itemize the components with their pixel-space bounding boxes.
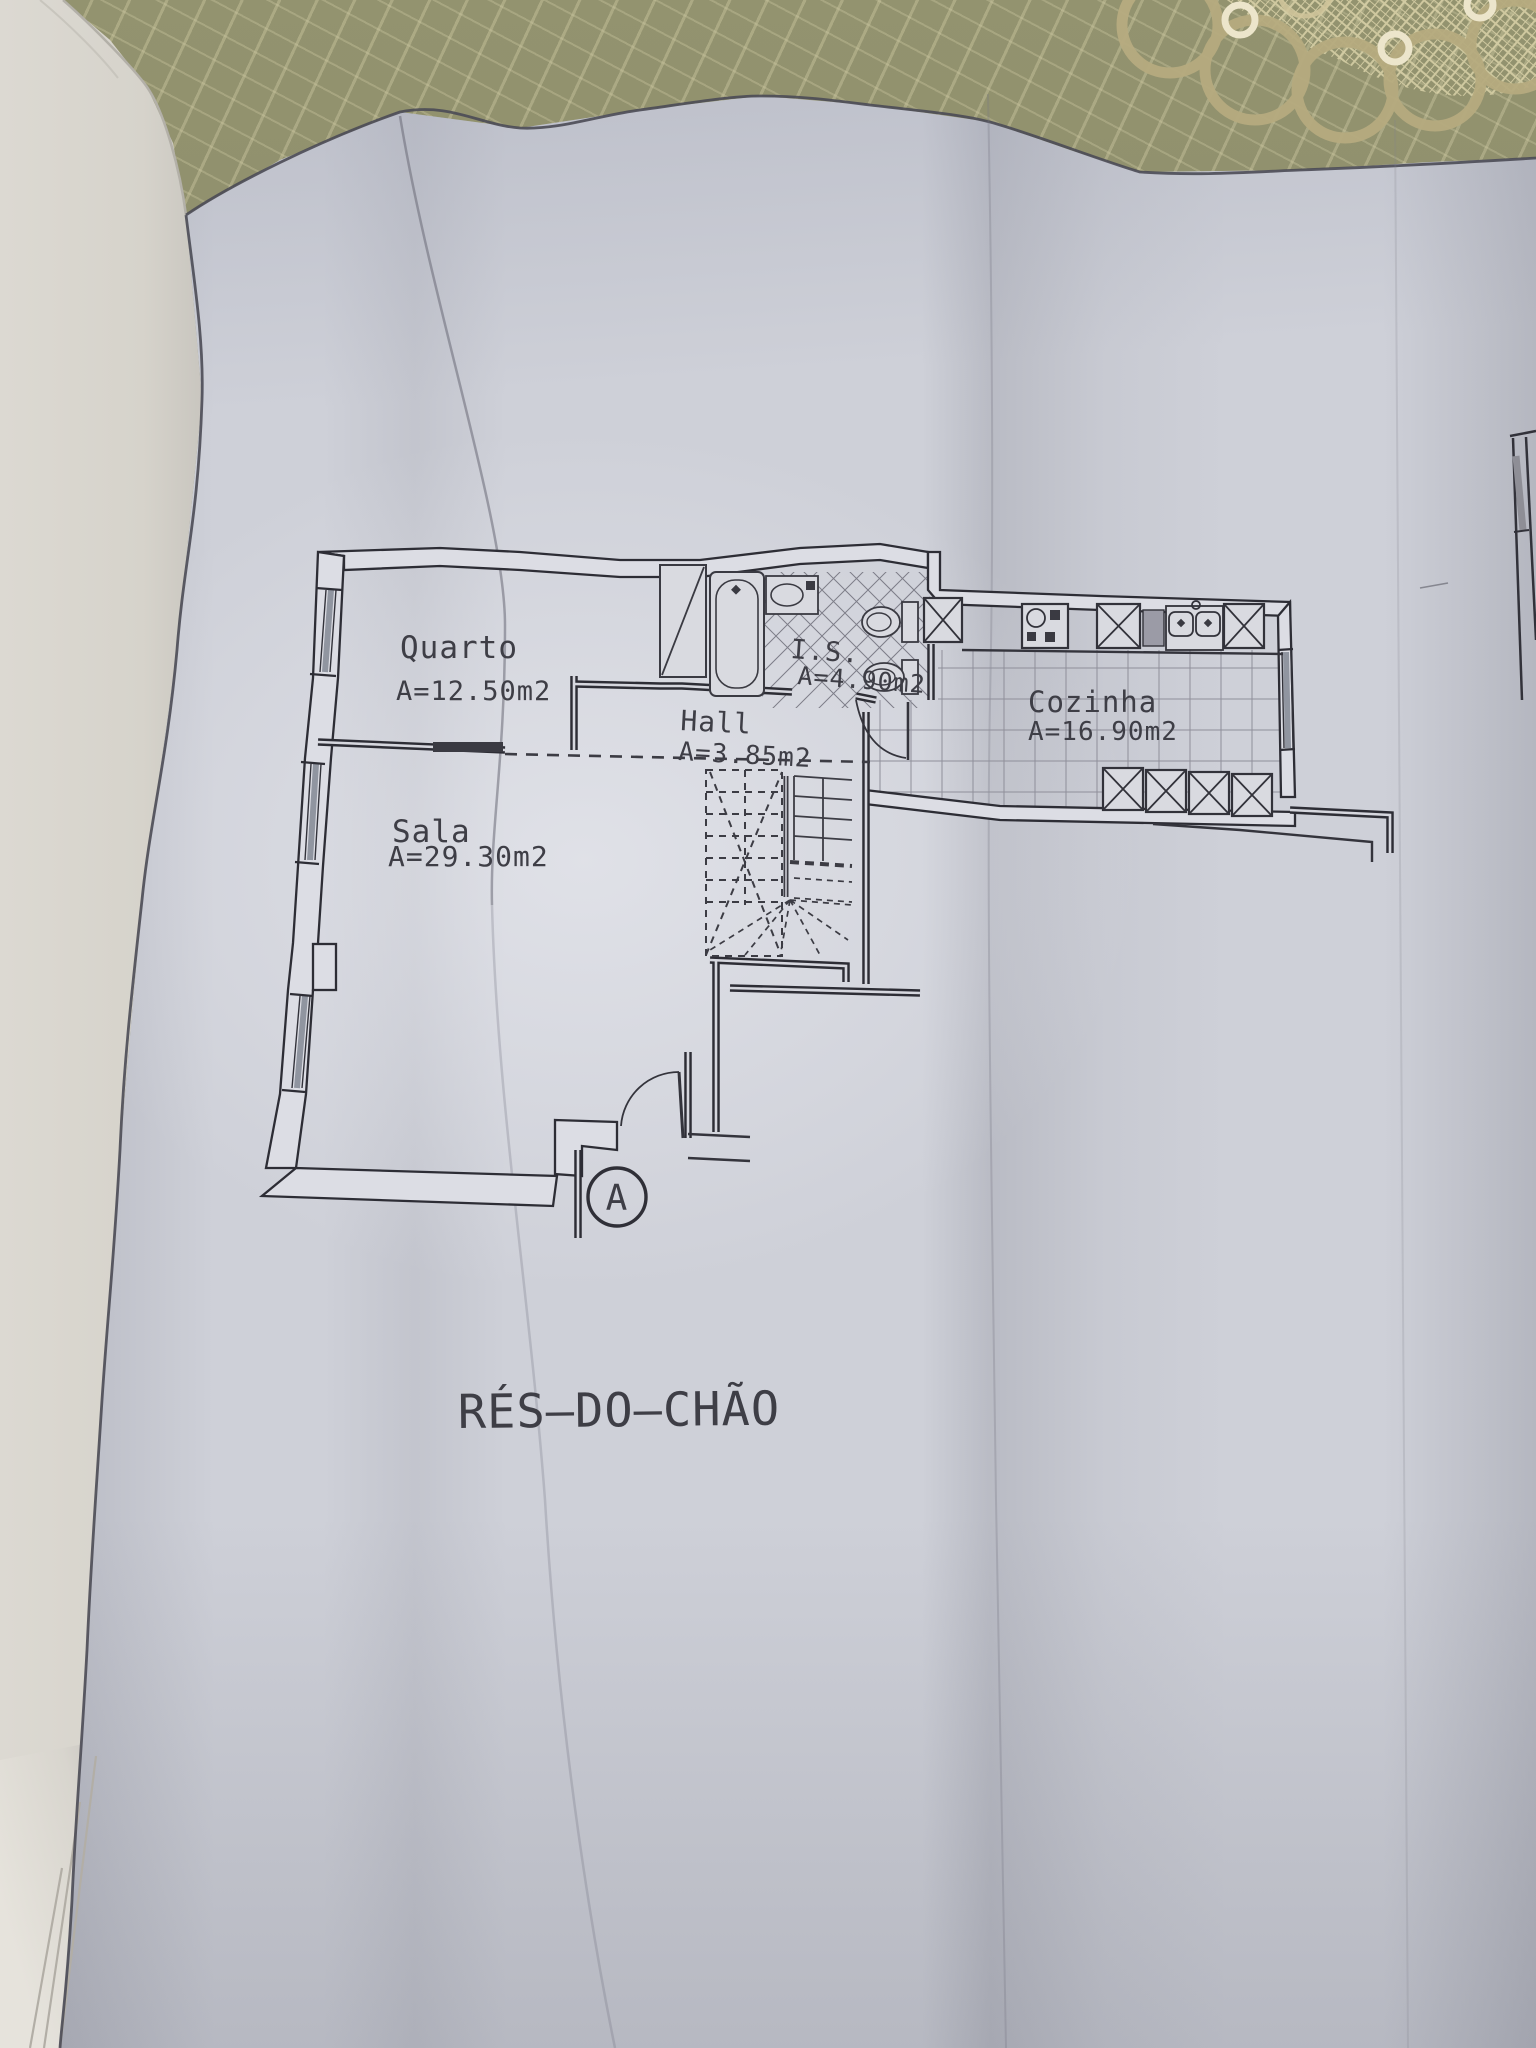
room-area-cozinha: A=16.90m2 <box>1028 717 1178 747</box>
stairs <box>706 770 852 957</box>
entrance-door-arc <box>621 1072 679 1126</box>
interior-walls-core <box>318 644 1390 1238</box>
photo-of-floor-plan: A Quarto A=12.50m2 I.S. A=4.90m2 Hall A=… <box>0 0 1536 2048</box>
threshold-sill <box>433 742 503 752</box>
toilet-symbol <box>862 602 918 642</box>
adjacent-plan-fragment <box>1510 431 1536 700</box>
cabinet-x-symbol <box>924 598 962 642</box>
stairs-section-cut <box>790 862 852 866</box>
room-label-hall: Hall <box>680 704 753 741</box>
kitchen-sink-symbol <box>1166 601 1223 650</box>
drainer-symbol <box>1143 610 1164 646</box>
room-area-sala: A=29.30m2 <box>388 840 549 873</box>
fold-creases <box>400 94 1448 2048</box>
section-marker-letter: A <box>606 1178 629 1219</box>
room-area-quarto: A=12.50m2 <box>396 676 551 707</box>
floor-plan-drawing: A Quarto A=12.50m2 I.S. A=4.90m2 Hall A=… <box>0 0 1536 2048</box>
page-edge-lines <box>30 0 186 2048</box>
room-area-hall: A=3.85m2 <box>678 737 813 774</box>
entrance-door-leaf <box>679 1072 683 1138</box>
cabinet-x-symbol <box>1224 604 1264 648</box>
plan-title: RÉS–DO–CHÃO <box>458 1382 781 1440</box>
room-label-quarto: Quarto <box>400 630 518 666</box>
washbasin-symbol <box>766 576 818 614</box>
stairs-lower-flight <box>794 776 852 861</box>
stairs-upper-flight-dashed <box>706 770 782 956</box>
stove-symbol <box>1022 604 1068 648</box>
interior-walls <box>318 644 1390 1238</box>
room-labels: Quarto A=12.50m2 I.S. A=4.90m2 Hall A=3.… <box>388 630 1178 873</box>
bathtub-symbol <box>710 572 764 696</box>
cabinet-x-symbol <box>1097 604 1140 648</box>
wardrobe-symbol <box>660 565 706 677</box>
room-label-cozinha: Cozinha <box>1028 685 1157 719</box>
